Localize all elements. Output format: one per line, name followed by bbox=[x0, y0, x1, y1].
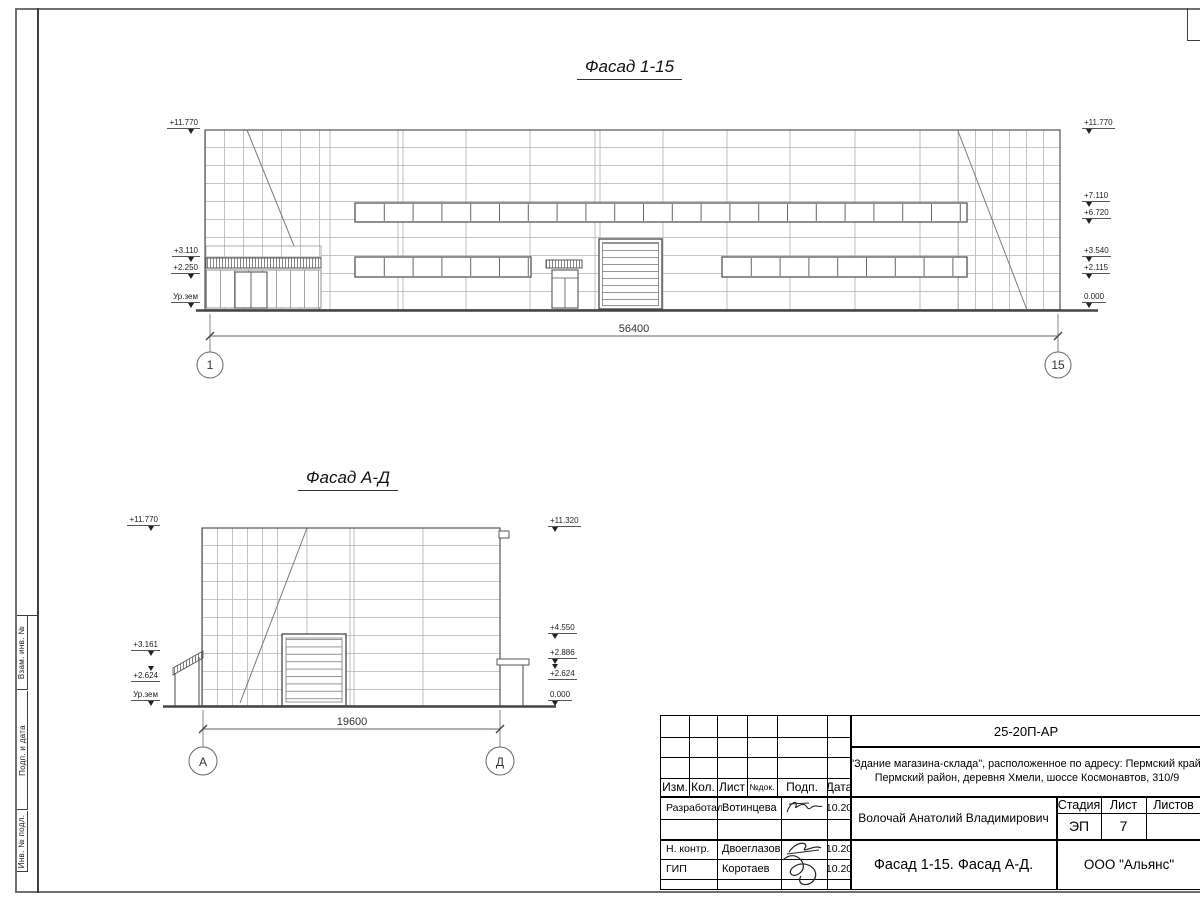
tb-project-line2: Пермский район, деревня Хмели, шоссе Кос… bbox=[875, 771, 1179, 785]
elevation-mark: +2.624 bbox=[114, 666, 160, 682]
elevation-mark: Ур.зем bbox=[154, 292, 200, 308]
title-block: Изм. Кол. Лист №док. Подп. Дата Разработ… bbox=[660, 715, 1200, 890]
level-mark-icon bbox=[148, 526, 154, 531]
tb-col-kol: Кол. bbox=[689, 778, 717, 796]
elevation-mark: +7.110 bbox=[1082, 191, 1128, 207]
level-mark-icon bbox=[1086, 257, 1092, 262]
tb-role: ГИП bbox=[661, 859, 722, 879]
tb-date: 10.20 bbox=[827, 859, 851, 879]
elevation-mark: +11.770 bbox=[1082, 118, 1128, 134]
elevation-mark: 0.000 bbox=[548, 690, 594, 706]
facade1-gate bbox=[599, 239, 662, 309]
tb-stage-label: Стадия bbox=[1057, 797, 1101, 813]
level-mark-icon bbox=[552, 527, 558, 532]
elevation-mark: +6.720 bbox=[1082, 208, 1128, 224]
tb-stage-value: ЭП bbox=[1057, 813, 1101, 839]
facade1-building bbox=[196, 130, 1098, 311]
tb-col-izm: Изм. bbox=[661, 778, 689, 796]
tb-date: 10.20 bbox=[827, 796, 851, 819]
facade1-title: Фасад 1-15 bbox=[577, 57, 682, 80]
tb-project-line1: "Здание магазина-склада", расположенное … bbox=[850, 757, 1200, 771]
level-mark-icon bbox=[188, 303, 194, 308]
tb-date: 10.20 bbox=[827, 839, 851, 859]
tb-col-list: Лист bbox=[717, 778, 747, 796]
level-mark-icon bbox=[552, 701, 558, 706]
tb-doc-number: 25-20П-АР bbox=[851, 716, 1200, 746]
facade1-dimension-value: 56400 bbox=[619, 323, 650, 335]
elevation-mark: +3.540 bbox=[1082, 246, 1128, 262]
level-mark-icon bbox=[1086, 219, 1092, 224]
elevation-mark: +3.110 bbox=[154, 246, 200, 262]
level-mark-icon bbox=[148, 651, 154, 656]
elevation-mark: +3.161 bbox=[114, 640, 160, 656]
tb-sheet-value: 7 bbox=[1101, 813, 1146, 839]
tb-sheets-value bbox=[1146, 813, 1200, 839]
drawing-sheet: { "facade1": { "title": "Фасад 1-15", "d… bbox=[0, 0, 1200, 900]
tb-role: Н. контр. bbox=[661, 839, 722, 859]
facade2-right-canopy bbox=[497, 659, 529, 706]
facade2-axis-d: Д bbox=[496, 755, 504, 769]
elevation-mark: +11.770 bbox=[154, 118, 200, 134]
level-mark-icon bbox=[188, 257, 194, 262]
signature-icon bbox=[775, 838, 829, 888]
tb-col-podp: Подп. bbox=[777, 778, 827, 796]
tb-sheet-title: Фасад 1-15. Фасад А-Д. bbox=[851, 840, 1056, 889]
facade2-title: Фасад А-Д bbox=[298, 468, 398, 491]
tb-project-name: "Здание магазина-склада", расположенное … bbox=[853, 747, 1200, 795]
elevation-mark: Ур.зем bbox=[114, 690, 160, 706]
level-mark-icon bbox=[1086, 202, 1092, 207]
tb-company: ООО "Альянс" bbox=[1057, 840, 1200, 889]
tb-sheets-label: Листов bbox=[1146, 797, 1200, 813]
facade1-axis-15: 15 bbox=[1051, 358, 1065, 372]
facade2-left-shed bbox=[173, 651, 203, 706]
tb-role: Разработал bbox=[661, 796, 722, 819]
facade1-left-entrance bbox=[206, 246, 321, 308]
signature-icon bbox=[783, 798, 825, 818]
elevation-mark: +11.770 bbox=[114, 515, 160, 531]
level-mark-icon bbox=[188, 274, 194, 279]
level-mark-icon bbox=[1086, 303, 1092, 308]
elevation-mark: +4.550 bbox=[548, 623, 594, 639]
level-mark-icon bbox=[1086, 274, 1092, 279]
facade2-axis-a: А bbox=[199, 755, 207, 769]
elevation-mark: +2.624 bbox=[548, 664, 594, 680]
elevation-mark: +2.115 bbox=[1082, 263, 1128, 279]
elevation-mark: 0.000 bbox=[1082, 292, 1128, 308]
tb-col-data: Дата bbox=[827, 778, 851, 796]
facade2-building bbox=[163, 528, 556, 707]
tb-name: Вотинцева bbox=[717, 796, 786, 819]
tb-sheet-label: Лист bbox=[1101, 797, 1146, 813]
level-mark-icon bbox=[1086, 129, 1092, 134]
elevation-mark: +11.320 bbox=[548, 516, 594, 532]
facade2-roof-vent bbox=[499, 531, 509, 538]
tb-chief-name: Волочай Анатолий Владимирович bbox=[851, 797, 1056, 839]
elevation-mark: +2.250 bbox=[154, 263, 200, 279]
tb-col-ndok: №док. bbox=[747, 778, 777, 796]
facade1-axis-1: 1 bbox=[207, 358, 214, 372]
facade2-dimension-value: 19600 bbox=[337, 716, 368, 728]
level-mark-icon bbox=[552, 634, 558, 639]
level-mark-icon bbox=[148, 701, 154, 706]
elevation-mark: +2.886 bbox=[548, 648, 594, 664]
facade2-gate bbox=[282, 634, 346, 706]
level-mark-icon bbox=[188, 129, 194, 134]
